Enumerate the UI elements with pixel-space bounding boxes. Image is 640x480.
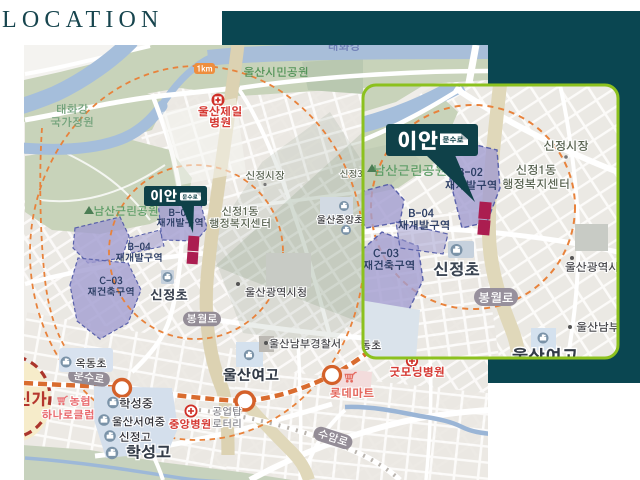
- svg-text:LOCATION: LOCATION: [2, 7, 164, 33]
